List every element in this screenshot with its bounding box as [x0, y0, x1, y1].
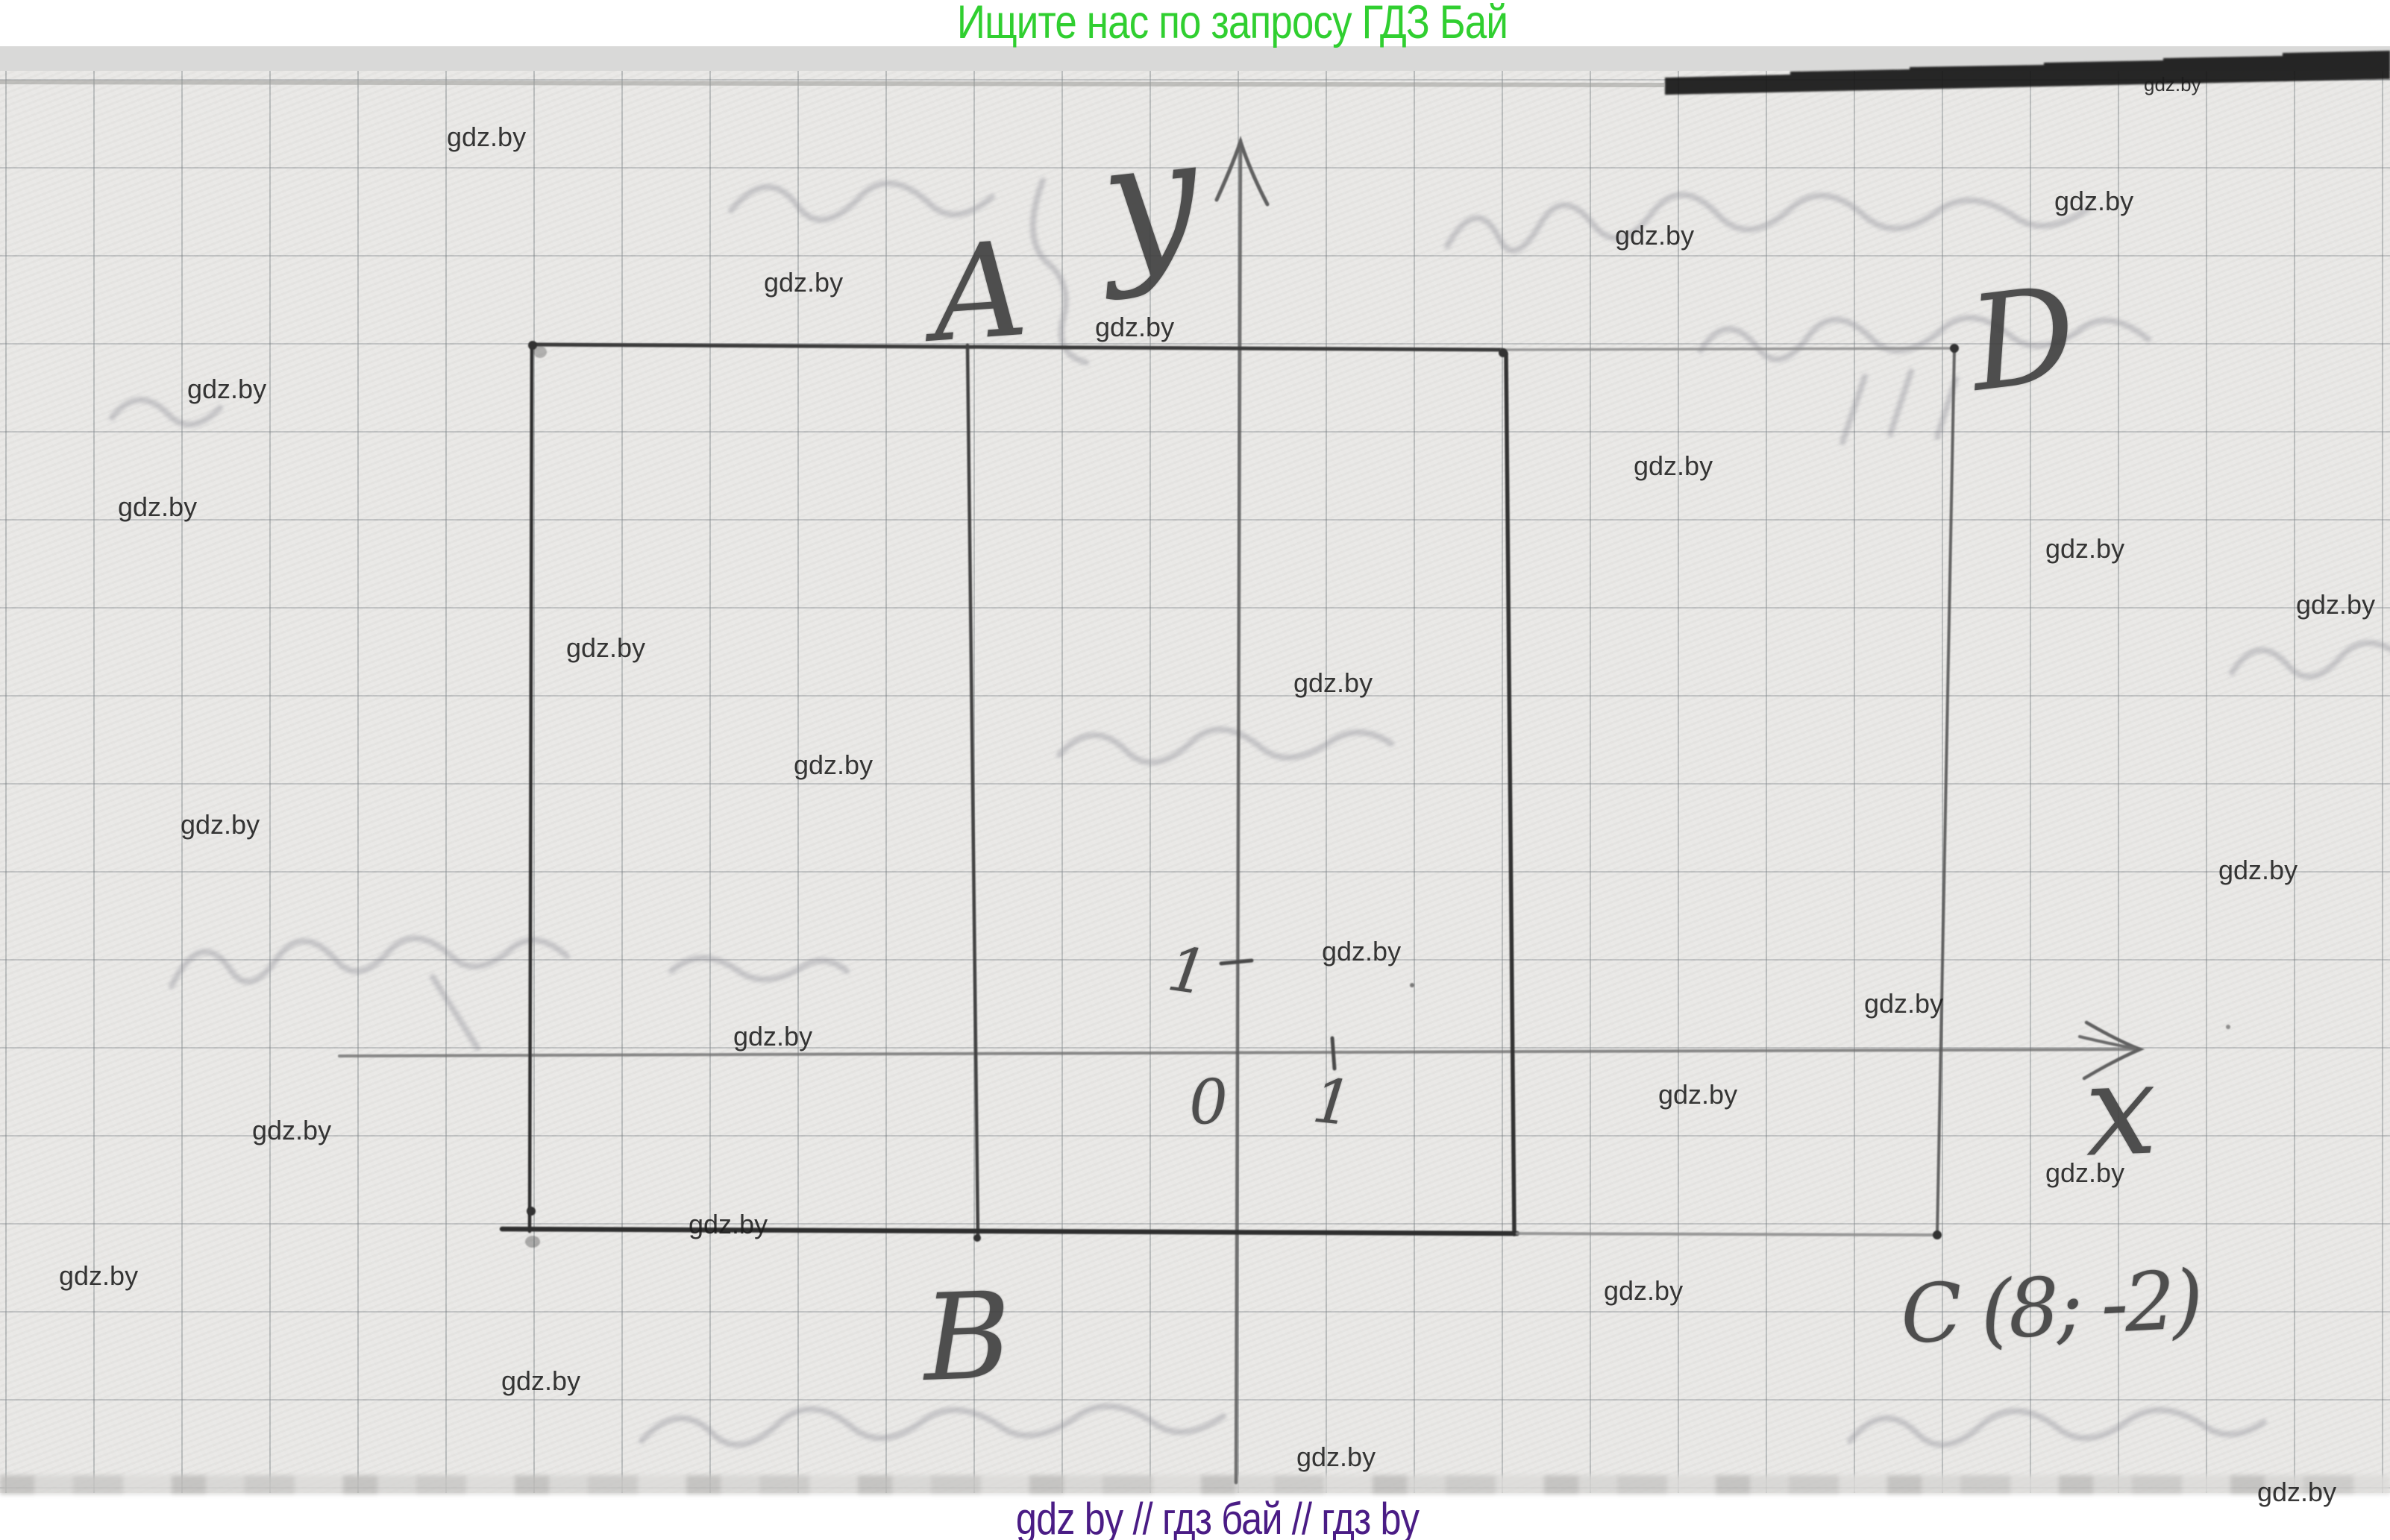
x-axis-line — [339, 1049, 2139, 1056]
y-axis-label: y — [1094, 113, 1206, 290]
watermark: gdz.by — [733, 1023, 812, 1050]
scanned-notebook-page: A B C (8; -2) D y x 0 1 1 Ищите нас по з… — [0, 0, 2390, 1540]
watermark: gdz.by — [764, 269, 843, 296]
origin-label: 0 — [1188, 1072, 1229, 1134]
watermark: gdz.by — [1634, 453, 1713, 480]
watermark: gdz.by — [2296, 591, 2375, 618]
x-unit-label: 1 — [1310, 1070, 1355, 1135]
watermark: gdz.by — [1322, 938, 1401, 965]
point-label-b: B — [921, 1276, 1013, 1398]
watermark: gdz.by — [2054, 188, 2133, 215]
watermark: gdz.by — [794, 752, 873, 779]
watermark: gdz.by — [2218, 857, 2298, 884]
watermark: gdz.by — [1864, 990, 1943, 1017]
rect-inner-line-ab — [967, 345, 978, 1237]
rect-left-edge — [530, 344, 532, 1231]
watermark: gdz.by — [181, 811, 260, 838]
watermark: gdz.by — [1615, 222, 1694, 249]
watermark: gdz.by — [187, 376, 266, 403]
point-label-c-with-coords: C (8; -2) — [1898, 1260, 2201, 1357]
x-unit-tick — [1332, 1038, 1334, 1069]
rect-top-edge-light — [1502, 348, 1953, 350]
point-label-a: A — [928, 224, 1031, 361]
watermark: gdz.by — [501, 1368, 580, 1395]
site-promo-title: Ищите нас по запросу ГДЗ Бай — [919, 0, 1546, 49]
watermark: gdz.by — [566, 635, 645, 661]
watermark: gdz.by — [689, 1211, 768, 1238]
watermark: gdz.by — [1095, 314, 1174, 341]
watermark: gdz.by — [2045, 1160, 2124, 1187]
watermark: gdz.by — [2257, 1479, 2336, 1506]
corner-dots — [525, 341, 2230, 1248]
watermark: gdz.by — [2144, 75, 2201, 94]
notebook-cover-band — [1665, 51, 2390, 95]
watermark: gdz.by — [1658, 1081, 1737, 1108]
watermark: gdz.by — [1296, 1444, 1376, 1471]
watermark: gdz.by — [1293, 670, 1373, 697]
watermark: gdz.by — [1604, 1277, 1683, 1304]
point-label-d: D — [1963, 268, 2083, 411]
watermark: gdz.by — [447, 124, 526, 151]
watermark: gdz.by — [252, 1117, 331, 1144]
watermark: gdz.by — [118, 494, 197, 521]
watermark: gdz.by — [2045, 535, 2124, 562]
page-top-edge-shadow — [0, 82, 1665, 85]
rect-bottom-edge — [502, 1229, 1517, 1233]
rect-right-edge — [1937, 349, 1954, 1233]
y-axis-line — [1236, 140, 1241, 1483]
x-axis-label: x — [2083, 1046, 2159, 1175]
rect-bottom-edge-light — [1517, 1233, 1939, 1235]
rect-inner-line-plus3 — [1506, 353, 1514, 1234]
watermark: gdz.by — [59, 1263, 138, 1289]
site-promo-footer: gdz by // гдз бай // гдз by — [948, 1493, 1487, 1540]
y-unit-tick — [1221, 961, 1252, 964]
